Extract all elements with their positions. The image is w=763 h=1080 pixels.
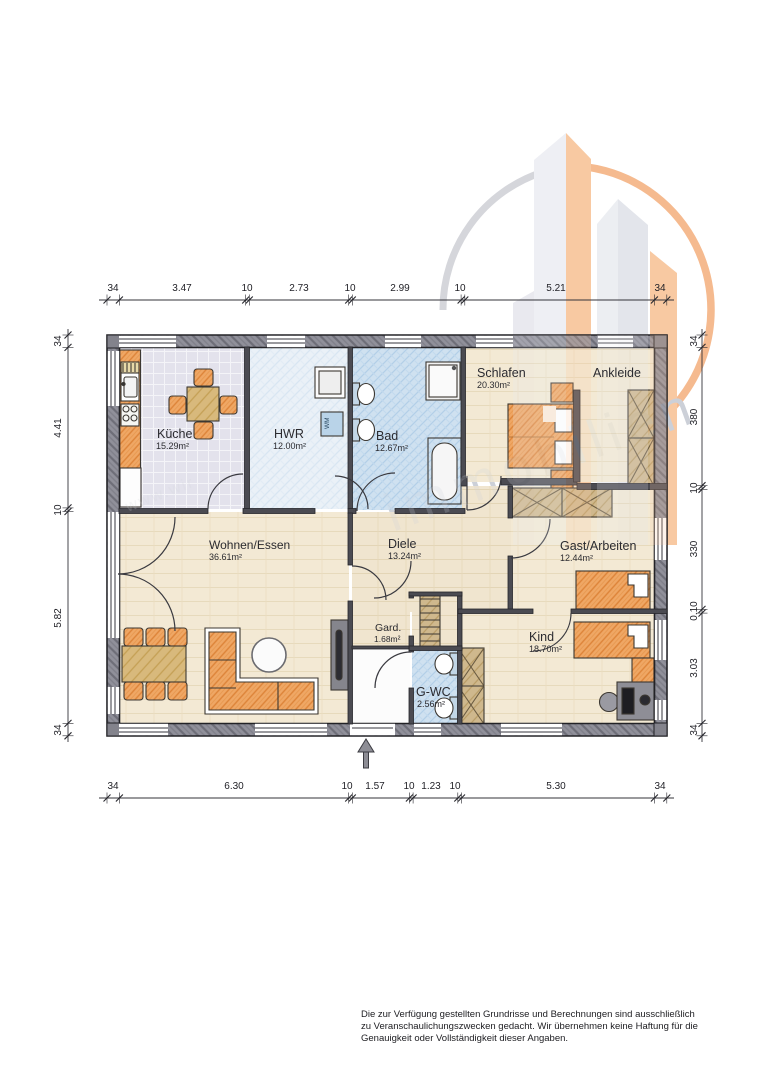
svg-text:2.73: 2.73 xyxy=(289,283,309,294)
svg-text:Die zur Verfügung gestellten G: Die zur Verfügung gestellten Grundrisse … xyxy=(361,1009,695,1020)
svg-text:380: 380 xyxy=(689,408,700,425)
svg-text:12.67m²: 12.67m² xyxy=(375,443,408,453)
svg-text:2.56m²: 2.56m² xyxy=(417,699,445,709)
svg-text:15.29m²: 15.29m² xyxy=(156,441,189,451)
svg-text:5.30: 5.30 xyxy=(546,781,566,792)
svg-text:Wohnen/Essen: Wohnen/Essen xyxy=(209,538,290,552)
svg-text:0.10: 0.10 xyxy=(689,601,700,621)
svg-text:G-WC: G-WC xyxy=(416,685,451,699)
svg-text:5.82: 5.82 xyxy=(53,608,64,628)
svg-text:1.23: 1.23 xyxy=(421,781,441,792)
svg-text:12.00m²: 12.00m² xyxy=(273,441,306,451)
svg-text:Gard.: Gard. xyxy=(375,622,401,634)
svg-text:Ankleide: Ankleide xyxy=(593,366,641,380)
svg-text:10: 10 xyxy=(53,504,64,516)
svg-text:10: 10 xyxy=(454,283,466,294)
svg-text:18.70m²: 18.70m² xyxy=(529,644,562,654)
svg-text:1.68m²: 1.68m² xyxy=(374,634,401,644)
svg-text:Schlafen: Schlafen xyxy=(477,366,526,380)
svg-text:10: 10 xyxy=(403,781,415,792)
svg-text:Gast/Arbeiten: Gast/Arbeiten xyxy=(560,539,636,553)
svg-text:Genauigkeit oder Vollständigke: Genauigkeit oder Vollständigkeit dieser … xyxy=(361,1033,568,1044)
svg-text:Küche: Küche xyxy=(157,427,192,441)
svg-text:10: 10 xyxy=(449,781,461,792)
svg-text:2.99: 2.99 xyxy=(390,283,410,294)
svg-text:5.21: 5.21 xyxy=(546,283,566,294)
svg-text:10: 10 xyxy=(241,283,253,294)
svg-text:12.44m²: 12.44m² xyxy=(560,553,593,563)
svg-text:1.57: 1.57 xyxy=(365,781,385,792)
svg-text:WM: WM xyxy=(324,417,331,429)
svg-text:34: 34 xyxy=(53,724,64,736)
svg-text:6.30: 6.30 xyxy=(224,781,244,792)
svg-text:Bad: Bad xyxy=(376,429,398,443)
svg-text:34: 34 xyxy=(689,724,700,736)
svg-text:36.61m²: 36.61m² xyxy=(209,552,242,562)
svg-text:10: 10 xyxy=(689,482,700,494)
svg-text:10: 10 xyxy=(341,781,353,792)
svg-text:4.41: 4.41 xyxy=(53,418,64,438)
svg-text:10: 10 xyxy=(344,283,356,294)
svg-text:13.24m²: 13.24m² xyxy=(388,551,421,561)
svg-text:zu Veranschaulichungszwecken g: zu Veranschaulichungszwecken gedacht. Wi… xyxy=(361,1021,698,1032)
svg-text:330: 330 xyxy=(689,540,700,557)
svg-text:20.30m²: 20.30m² xyxy=(477,380,510,390)
svg-text:34: 34 xyxy=(654,283,666,294)
svg-text:34: 34 xyxy=(53,335,64,347)
svg-text:Kind: Kind xyxy=(529,630,554,644)
svg-text:Diele: Diele xyxy=(388,537,417,551)
svg-text:3.47: 3.47 xyxy=(172,283,192,294)
svg-text:34: 34 xyxy=(689,335,700,347)
svg-text:34: 34 xyxy=(107,283,119,294)
svg-text:34: 34 xyxy=(107,781,119,792)
svg-text:34: 34 xyxy=(654,781,666,792)
svg-text:HWR: HWR xyxy=(274,427,304,441)
svg-text:3.03: 3.03 xyxy=(689,658,700,678)
